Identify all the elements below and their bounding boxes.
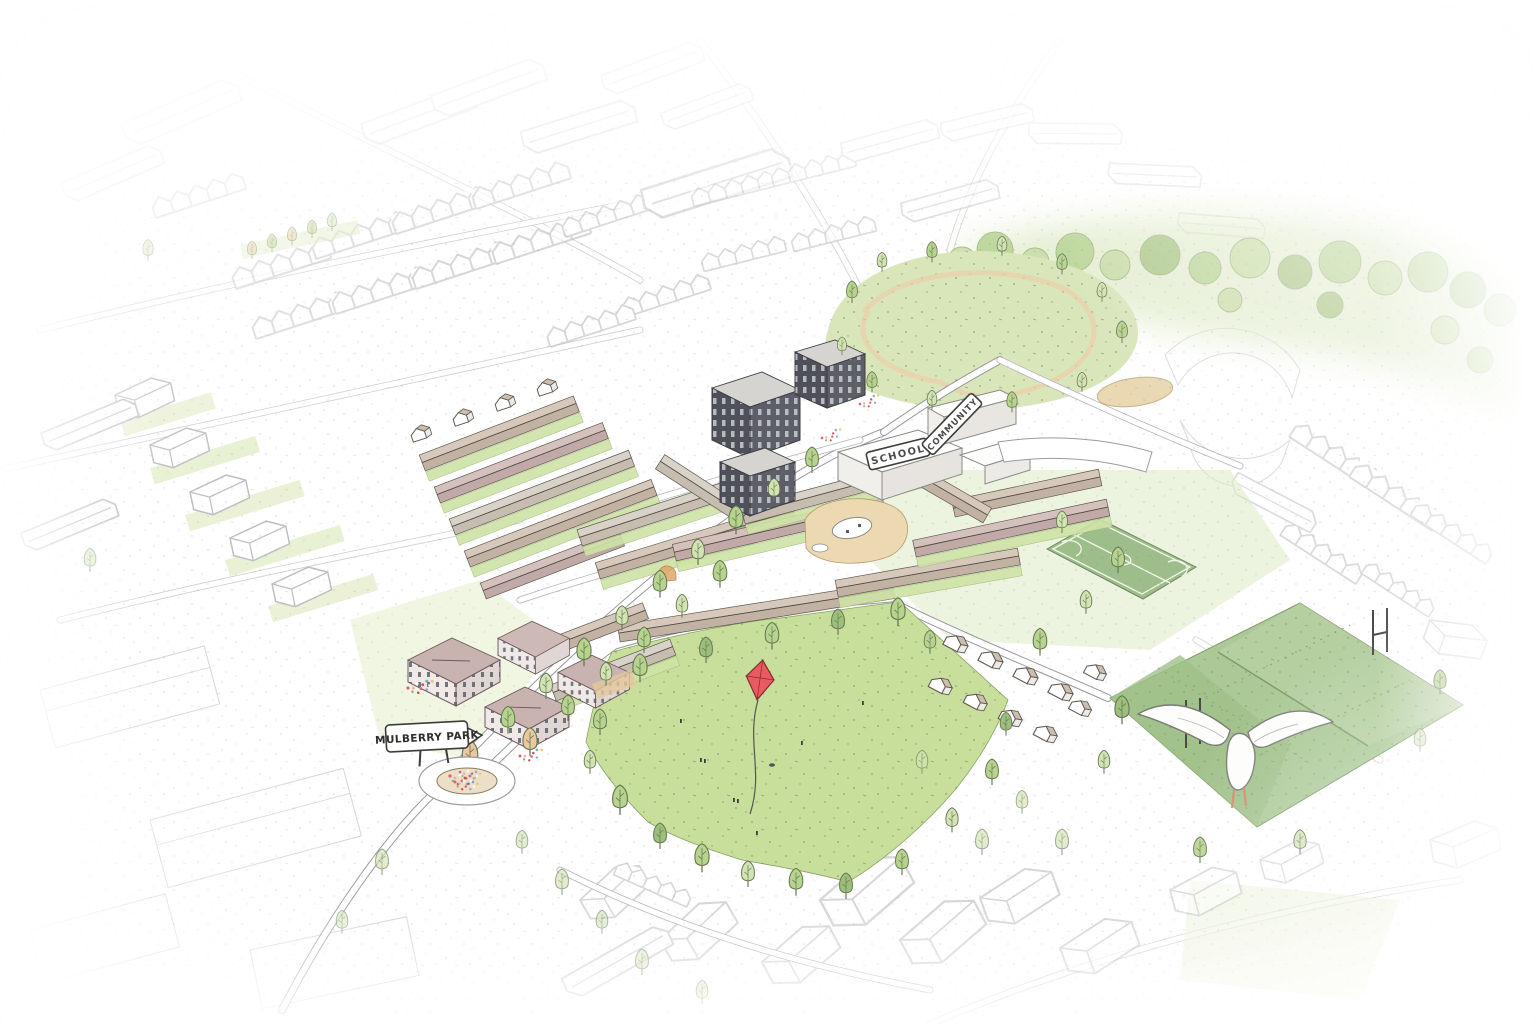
masterplan-canvas: SCHOOL COMMUNITY [0, 0, 1536, 1024]
school-playground [805, 499, 908, 564]
roundabout-flowerbed [437, 768, 497, 794]
masterplan-illustration: SCHOOL COMMUNITY [0, 0, 1536, 1024]
